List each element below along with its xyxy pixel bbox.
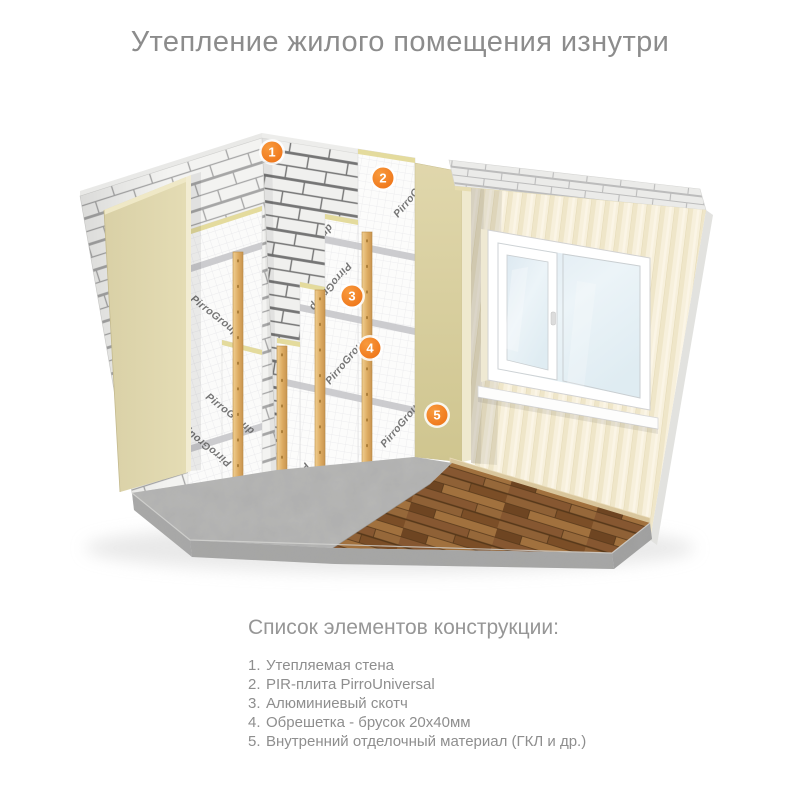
marker-5: 5 bbox=[424, 402, 450, 428]
page: Утепление жилого помещения изнутри bbox=[0, 0, 800, 800]
gkl-panel-left bbox=[104, 172, 201, 492]
window bbox=[478, 229, 658, 434]
legend-item-label: Внутренний отделочный материал (ГКЛ и др… bbox=[266, 733, 586, 750]
legend-list: 1.Утепляемая стена 2.PIR-плита PirroUniv… bbox=[248, 656, 586, 751]
legend-item: 5.Внутренний отделочный материал (ГКЛ и … bbox=[248, 732, 586, 751]
legend-item-number: 1. bbox=[248, 656, 266, 675]
svg-text:3: 3 bbox=[348, 289, 355, 304]
svg-text:5: 5 bbox=[433, 408, 440, 423]
legend-item-number: 2. bbox=[248, 675, 266, 694]
legend-item-label: Алюминиевый скотч bbox=[266, 695, 408, 712]
legend-item-label: Утепляемая стена bbox=[266, 657, 394, 674]
window-handle bbox=[551, 312, 556, 325]
svg-text:2: 2 bbox=[379, 171, 386, 186]
marker-4: 4 bbox=[357, 335, 383, 361]
legend-item: 3.Алюминиевый скотч bbox=[248, 694, 586, 713]
legend-item: 4.Обрешетка - брусок 20x40мм bbox=[248, 713, 586, 732]
legend-item-label: PIR-плита PirroUniversal bbox=[266, 676, 435, 693]
window-jamb bbox=[481, 229, 488, 382]
wood-batten bbox=[233, 252, 243, 483]
legend-item-number: 4. bbox=[248, 713, 266, 732]
svg-text:1: 1 bbox=[268, 145, 275, 160]
legend-item-number: 3. bbox=[248, 694, 266, 713]
marker-2: 2 bbox=[370, 165, 396, 191]
marker-1: 1 bbox=[259, 139, 285, 165]
legend-heading: Список элементов конструкции: bbox=[248, 616, 586, 640]
legend-item: 1.Утепляемая стена bbox=[248, 656, 586, 675]
svg-text:4: 4 bbox=[366, 341, 374, 356]
legend-item: 2.PIR-плита PirroUniversal bbox=[248, 675, 586, 694]
legend: Список элементов конструкции: 1.Утепляем… bbox=[248, 616, 586, 751]
legend-item-number: 5. bbox=[248, 732, 266, 751]
legend-item-label: Обрешетка - брусок 20x40мм bbox=[266, 714, 471, 731]
marker-3: 3 bbox=[339, 283, 365, 309]
